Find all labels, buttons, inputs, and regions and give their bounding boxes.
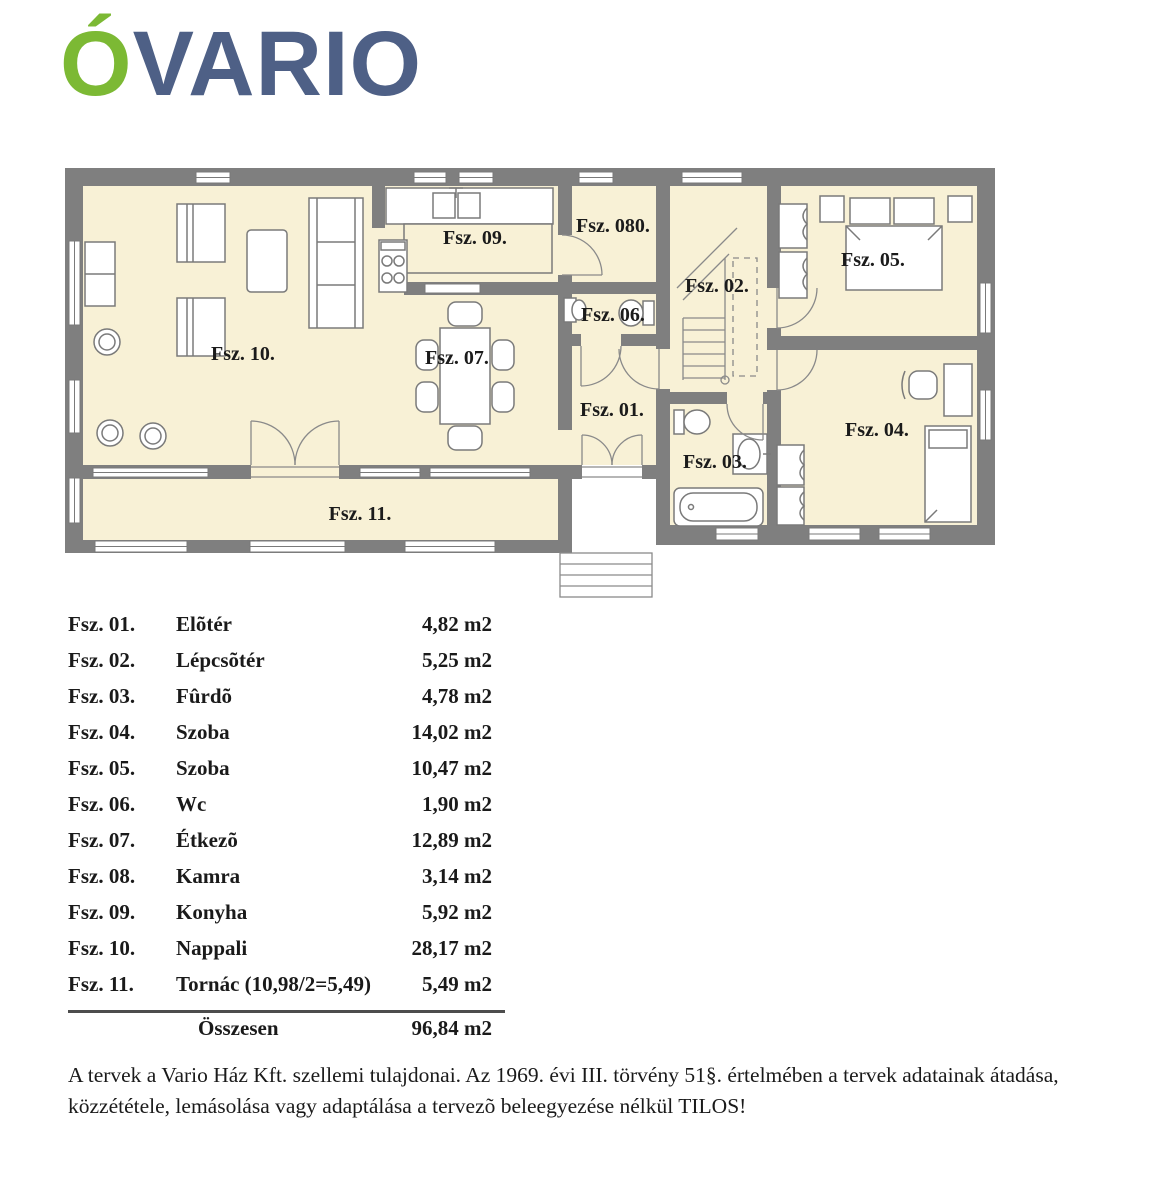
table-row: Fsz. 11.Tornác (10,98/2=5,49)5,49 m2: [68, 972, 492, 1008]
room-label-fsz01: Fsz. 01.: [580, 399, 644, 421]
window-porch-divider-1: [93, 468, 208, 477]
table-row: Fsz. 04.Szoba14,02 m2: [68, 720, 492, 756]
room-name: Lépcsõtér: [176, 648, 382, 673]
table-row: Fsz. 10.Nappali28,17 m2: [68, 936, 492, 972]
logo-name: VARIO: [133, 13, 423, 115]
copyright-disclaimer: A tervek a Vario Ház Kft. szellemi tulaj…: [68, 1060, 1126, 1121]
room-area: 10,47 m2: [382, 756, 492, 781]
total-area: 96,84 m2: [382, 1016, 492, 1041]
page: ÓVARIO: [0, 0, 1160, 1192]
room-code: Fsz. 09.: [68, 900, 176, 925]
room-area: 14,02 m2: [382, 720, 492, 745]
window-right-bedroom4: [980, 390, 991, 440]
nightstand-5b: [948, 196, 972, 222]
armchair-1: [177, 204, 225, 262]
room-area: 5,49 m2: [382, 972, 492, 997]
window-top-kitchen-1: [414, 172, 446, 183]
porch-rail-gap-1: [95, 541, 187, 552]
room-area: 12,89 m2: [382, 828, 492, 853]
room-name: Elõtér: [176, 612, 382, 637]
room-area: 4,82 m2: [382, 612, 492, 637]
bathtub-icon: [674, 488, 763, 526]
room-name: Tornác (10,98/2=5,49): [176, 972, 382, 997]
room-code: Fsz. 07.: [68, 828, 176, 853]
toilet-icon: [674, 410, 710, 434]
window-porch-divider-2: [360, 468, 420, 477]
room-code: Fsz. 10.: [68, 936, 176, 961]
room-area: 4,78 m2: [382, 684, 492, 709]
ovario-logo: ÓVARIO: [60, 14, 422, 114]
bookshelf: [85, 242, 115, 306]
total-label: Összesen: [176, 1016, 382, 1041]
table-row: Fsz. 09.Konyha5,92 m2: [68, 900, 492, 936]
kitchen-pass-through: [425, 284, 480, 293]
table-row: Fsz. 01.Elõtér4,82 m2: [68, 612, 492, 648]
room-label-fsz07: Fsz. 07.: [425, 347, 489, 369]
window-bottom-2: [809, 528, 860, 540]
room-area: 5,25 m2: [382, 648, 492, 673]
room-area-table: Fsz. 01.Elõtér4,82 m2 Fsz. 02.Lépcsõtér5…: [68, 612, 492, 1052]
logo-accent-letter: Ó: [60, 13, 133, 115]
room-label-fsz04: Fsz. 04.: [845, 419, 909, 441]
room-area: 1,90 m2: [382, 792, 492, 817]
desk: [944, 364, 972, 416]
nightstand-5a: [820, 196, 844, 222]
side-stool-1: [94, 329, 120, 355]
single-bed: [925, 426, 971, 522]
wardrobe-4: [777, 445, 804, 525]
entry-nook: [572, 473, 656, 553]
double-bed: [846, 198, 942, 290]
window-bottom-1: [716, 528, 758, 540]
window-bottom-3: [879, 528, 930, 540]
room-area: 3,14 m2: [382, 864, 492, 889]
room-name: Étkezõ: [176, 828, 382, 853]
window-right-bedroom5: [980, 283, 991, 333]
room-code: Fsz. 11.: [68, 972, 176, 997]
window-top-pantry: [579, 172, 613, 183]
room-code: Fsz. 04.: [68, 720, 176, 745]
room-label-fsz10: Fsz. 10.: [211, 343, 275, 365]
window-left-1: [69, 241, 80, 325]
table-row: Fsz. 03.Fûrdõ4,78 m2: [68, 684, 492, 720]
window-top-kitchen-2: [459, 172, 493, 183]
side-stool-3: [140, 423, 166, 449]
entry-steps: [560, 553, 652, 597]
stove-icon: [379, 240, 407, 292]
room-label-fsz02: Fsz. 02.: [685, 275, 749, 297]
room-name: Nappali: [176, 936, 382, 961]
floor-plan: Fsz. 10. Fsz. 09. Fsz. 080. Fsz. 02. Fsz…: [65, 168, 995, 598]
room-code: Fsz. 05.: [68, 756, 176, 781]
table-row: Fsz. 06.Wc1,90 m2: [68, 792, 492, 828]
room-name: Fûrdõ: [176, 684, 382, 709]
room-label-fsz03: Fsz. 03.: [683, 451, 747, 473]
room-name: Kamra: [176, 864, 382, 889]
table-total-row: Összesen96,84 m2: [68, 1016, 492, 1052]
floor-plan-svg: Fsz. 10. Fsz. 09. Fsz. 080. Fsz. 02. Fsz…: [65, 168, 995, 598]
coffee-table: [247, 230, 287, 292]
window-porch-divider-3: [430, 468, 530, 477]
table-row: Fsz. 05.Szoba10,47 m2: [68, 756, 492, 792]
room-name: Wc: [176, 792, 382, 817]
window-top-stair: [682, 172, 742, 183]
porch-rail-gap-3: [405, 541, 495, 552]
porch-rail-gap-2: [250, 541, 345, 552]
table-total-separator: [68, 1010, 505, 1013]
room-label-fsz11: Fsz. 11.: [329, 503, 392, 525]
room-label-fsz05: Fsz. 05.: [841, 249, 905, 271]
room-label-fsz080: Fsz. 080.: [576, 215, 650, 237]
sofa: [309, 198, 363, 328]
room-area: 28,17 m2: [382, 936, 492, 961]
room-code: Fsz. 02.: [68, 648, 176, 673]
room-code: Fsz. 03.: [68, 684, 176, 709]
table-row: Fsz. 07.Étkezõ12,89 m2: [68, 828, 492, 864]
window-left-2: [69, 380, 80, 433]
room-code: Fsz. 06.: [68, 792, 176, 817]
room-name: Szoba: [176, 720, 382, 745]
table-row: Fsz. 02.Lépcsõtér5,25 m2: [68, 648, 492, 684]
room-code: Fsz. 01.: [68, 612, 176, 637]
room-name: Konyha: [176, 900, 382, 925]
window-left-porch: [69, 478, 80, 523]
table-row: Fsz. 08.Kamra3,14 m2: [68, 864, 492, 900]
room-name: Szoba: [176, 756, 382, 781]
room-area: 5,92 m2: [382, 900, 492, 925]
window-top-living: [196, 172, 230, 183]
room-label-fsz09: Fsz. 09.: [443, 227, 507, 249]
room-label-fsz06: Fsz. 06.: [581, 304, 645, 326]
room-code: Fsz. 08.: [68, 864, 176, 889]
side-stool-2: [97, 420, 123, 446]
